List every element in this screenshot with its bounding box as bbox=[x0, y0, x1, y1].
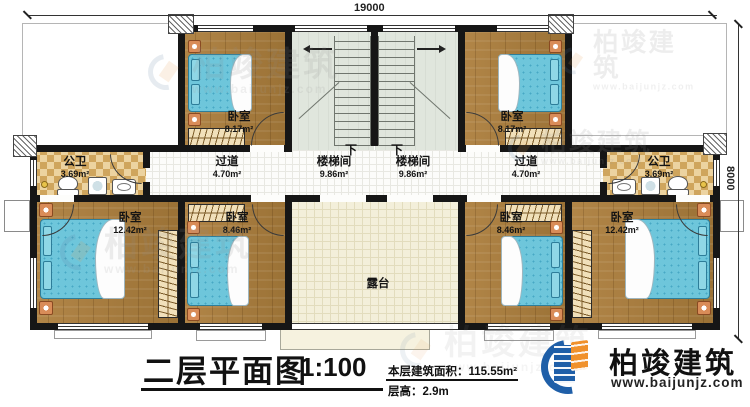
roof-area-left bbox=[22, 23, 180, 147]
nightstand bbox=[549, 113, 562, 126]
window bbox=[200, 323, 262, 330]
title-underline bbox=[141, 388, 383, 391]
door-opening bbox=[250, 145, 284, 152]
wall bbox=[143, 152, 150, 168]
wall bbox=[458, 202, 465, 330]
ac-platform bbox=[4, 200, 30, 232]
wall bbox=[600, 182, 607, 195]
wall bbox=[178, 25, 185, 152]
roof-area-right bbox=[570, 23, 727, 136]
washing-machine bbox=[641, 177, 660, 195]
stair-treads-left bbox=[334, 36, 371, 146]
room-label-corridor-left: 过道 4.70m² bbox=[213, 156, 242, 180]
nightstand bbox=[187, 308, 200, 321]
nightstand bbox=[39, 301, 53, 315]
dimension-line-right bbox=[738, 24, 739, 340]
footer-divider bbox=[386, 379, 518, 381]
wall bbox=[285, 25, 292, 152]
bed bbox=[187, 236, 249, 306]
wardrobe bbox=[572, 230, 592, 318]
bed bbox=[188, 54, 252, 112]
window-sill bbox=[598, 330, 696, 339]
nightstand bbox=[550, 308, 563, 321]
wall bbox=[600, 152, 607, 168]
door-opening bbox=[466, 145, 500, 152]
room-label-stairwell-left: 楼梯间 9.86m² bbox=[317, 156, 352, 180]
wall bbox=[565, 202, 572, 330]
room-label-bath-left: 公卫 3.69m² bbox=[61, 156, 90, 180]
room-label-bedroom-inner-right: 卧室 8.46m² bbox=[497, 212, 526, 236]
window-sill bbox=[54, 330, 152, 339]
door-opening bbox=[251, 195, 285, 202]
wall bbox=[371, 25, 378, 146]
column-hatch bbox=[13, 135, 37, 157]
nightstand bbox=[550, 221, 563, 234]
wall bbox=[178, 202, 185, 330]
room-label-terrace: 露台 bbox=[367, 278, 390, 291]
window bbox=[488, 323, 550, 330]
window bbox=[713, 160, 720, 186]
floor-height-text: 层高：2.9m bbox=[388, 383, 449, 399]
floor-terrace bbox=[290, 198, 460, 330]
column-hatch bbox=[548, 14, 574, 34]
stair-direction-arrow-left bbox=[306, 48, 332, 50]
door-opening bbox=[387, 195, 433, 202]
door-opening bbox=[467, 195, 501, 202]
window bbox=[602, 323, 692, 330]
wall bbox=[30, 145, 185, 152]
wall bbox=[143, 182, 150, 195]
window-sill bbox=[196, 330, 266, 341]
window bbox=[383, 25, 455, 32]
window bbox=[497, 25, 552, 32]
door-opening bbox=[40, 195, 74, 202]
company-logo-icon bbox=[540, 335, 604, 399]
dimension-right-value: 8000 bbox=[724, 166, 736, 190]
washing-machine bbox=[88, 177, 107, 195]
floor-area-text: 本层建筑面积：115.55m² bbox=[388, 363, 517, 379]
room-label-bedroom-outer-right: 卧室 12.42m² bbox=[605, 212, 639, 236]
wall bbox=[458, 25, 465, 152]
room-label-stairwell-right: 楼梯间 9.86m² bbox=[396, 156, 431, 180]
ac-platform bbox=[720, 200, 744, 232]
room-label-bedroom-outer-left: 卧室 12.42m² bbox=[113, 212, 147, 236]
window bbox=[30, 160, 37, 186]
drawing-scale: 1:100 bbox=[300, 352, 367, 383]
terrace-railing bbox=[292, 323, 458, 330]
room-label-bedroom-inner-left: 卧室 8.46m² bbox=[223, 212, 252, 236]
door-opening bbox=[676, 195, 710, 202]
floor-drain bbox=[41, 181, 48, 188]
floorplan-canvas: 19000 8000 卧室 8.17m² 下 下 楼梯间 9.86m² 楼梯间 … bbox=[0, 0, 750, 407]
window bbox=[295, 25, 367, 32]
floor-drain bbox=[700, 181, 707, 188]
bed bbox=[501, 236, 563, 306]
column-hatch bbox=[703, 133, 727, 155]
room-label-bedroom-top-right: 卧室 8.17m² bbox=[498, 111, 527, 135]
window bbox=[198, 25, 253, 32]
column-hatch bbox=[168, 14, 194, 34]
nightstand bbox=[697, 301, 711, 315]
stair-direction-arrow-right bbox=[417, 48, 443, 50]
room-label-bath-right: 公卫 3.69m² bbox=[645, 156, 674, 180]
door-opening bbox=[320, 195, 366, 202]
nightstand bbox=[188, 113, 201, 126]
stair-treads-right bbox=[378, 36, 415, 146]
wall bbox=[565, 145, 720, 152]
window bbox=[58, 323, 148, 330]
window bbox=[30, 258, 37, 308]
company-website: www.baijunjz.com bbox=[611, 375, 744, 390]
room-label-bedroom-top-left: 卧室 8.17m² bbox=[225, 111, 254, 135]
wall bbox=[285, 202, 292, 330]
nightstand bbox=[187, 221, 200, 234]
dimension-line-top bbox=[27, 15, 717, 16]
drawing-title: 二层平面图 bbox=[143, 346, 308, 391]
window bbox=[713, 258, 720, 308]
bed bbox=[498, 54, 562, 112]
wall bbox=[292, 195, 465, 202]
wall bbox=[565, 25, 572, 152]
nightstand bbox=[549, 40, 562, 53]
wardrobe bbox=[158, 230, 178, 318]
room-label-corridor-right: 过道 4.70m² bbox=[512, 156, 541, 180]
dimension-top-value: 19000 bbox=[354, 2, 385, 14]
nightstand bbox=[188, 40, 201, 53]
